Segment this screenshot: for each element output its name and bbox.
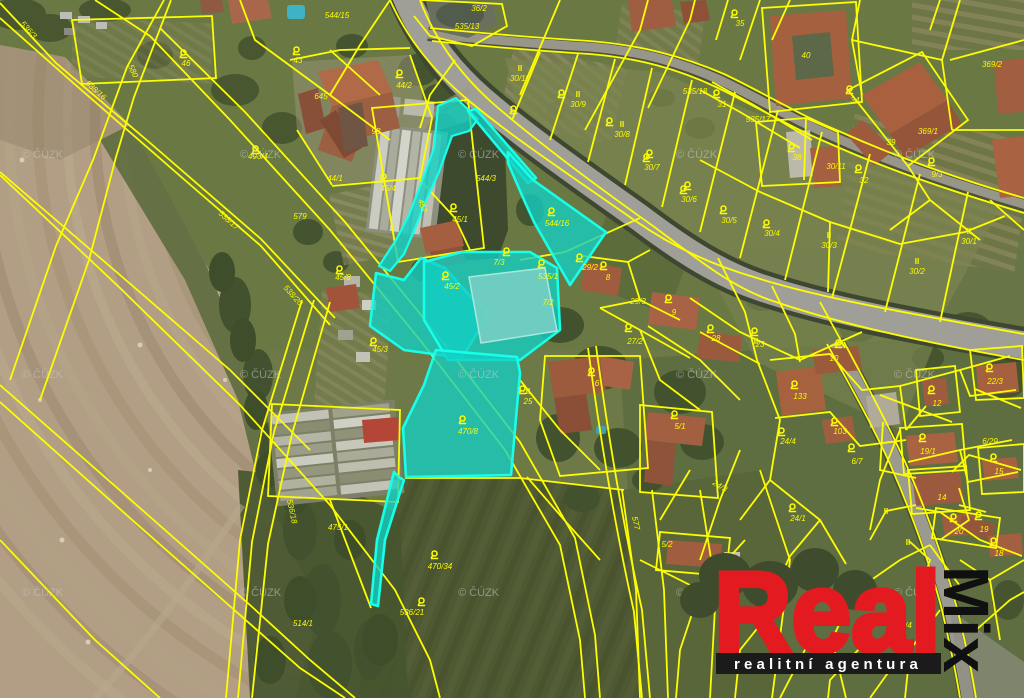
svg-text:© ČÚZK: © ČÚZK <box>240 586 282 599</box>
svg-text:39: 39 <box>887 138 896 147</box>
svg-text:6/7: 6/7 <box>851 457 863 466</box>
svg-text:43: 43 <box>294 56 303 65</box>
svg-text:24/4: 24/4 <box>779 437 796 446</box>
svg-text:369/2: 369/2 <box>982 60 1003 69</box>
svg-text:475/1: 475/1 <box>328 523 348 532</box>
svg-text:30/4: 30/4 <box>764 229 780 238</box>
svg-text:realitní agentura: realitní agentura <box>734 656 922 673</box>
svg-text:© ČÚZK: © ČÚZK <box>676 368 718 381</box>
svg-text:535/17: 535/17 <box>746 115 771 124</box>
svg-text:544/16: 544/16 <box>545 219 570 228</box>
svg-text:24/1: 24/1 <box>789 514 806 523</box>
svg-text:30/11: 30/11 <box>826 162 845 171</box>
svg-text:98: 98 <box>372 127 381 136</box>
svg-text:© ČÚZK: © ČÚZK <box>894 368 936 381</box>
svg-text:© ČÚZK: © ČÚZK <box>458 586 500 599</box>
svg-text:7/3: 7/3 <box>493 258 505 267</box>
svg-text:29/2: 29/2 <box>581 263 598 272</box>
svg-text:44/1: 44/1 <box>327 174 343 183</box>
svg-text:© ČÚZK: © ČÚZK <box>458 148 500 161</box>
svg-text:18: 18 <box>995 549 1004 558</box>
svg-text:© ČÚZK: © ČÚZK <box>240 368 282 381</box>
svg-text:8: 8 <box>606 273 611 282</box>
svg-text:536/21: 536/21 <box>400 608 424 617</box>
svg-text:6/29: 6/29 <box>982 437 998 446</box>
svg-text:535/1: 535/1 <box>538 272 558 281</box>
svg-text:31: 31 <box>718 100 727 109</box>
svg-text:36/2: 36/2 <box>471 4 487 13</box>
svg-text:7/2: 7/2 <box>542 298 554 307</box>
svg-text:535/13: 535/13 <box>455 22 480 31</box>
svg-text:544/15: 544/15 <box>325 11 350 20</box>
svg-text:6: 6 <box>595 379 600 388</box>
svg-text:© ČÚZK: © ČÚZK <box>240 148 282 161</box>
svg-text:II: II <box>915 257 919 266</box>
svg-text:II: II <box>906 538 910 547</box>
svg-text:45/4: 45/4 <box>380 184 396 193</box>
svg-text:© ČÚZK: © ČÚZK <box>22 368 64 381</box>
svg-text:10: 10 <box>830 354 839 363</box>
svg-text:II: II <box>526 387 530 396</box>
svg-text:9: 9 <box>672 308 677 317</box>
svg-text:38: 38 <box>793 153 802 162</box>
svg-text:535/18: 535/18 <box>683 87 708 96</box>
svg-text:30/3: 30/3 <box>821 241 837 250</box>
svg-text:22/3: 22/3 <box>986 377 1003 386</box>
svg-text:45/8: 45/8 <box>335 273 351 282</box>
svg-text:12: 12 <box>933 399 942 408</box>
svg-text:II: II <box>827 231 831 240</box>
svg-text:II: II <box>967 227 971 236</box>
svg-text:30/7: 30/7 <box>644 163 660 172</box>
svg-text:19/1: 19/1 <box>920 447 936 456</box>
svg-text:25: 25 <box>523 397 533 406</box>
svg-text:II: II <box>620 120 624 129</box>
svg-text:30/8: 30/8 <box>614 130 630 139</box>
svg-text:15: 15 <box>995 467 1004 476</box>
svg-text:© ČÚZK: © ČÚZK <box>676 148 718 161</box>
svg-text:5/2: 5/2 <box>661 540 673 549</box>
svg-text:470/8: 470/8 <box>458 427 479 436</box>
svg-text:46: 46 <box>182 59 191 68</box>
svg-text:30/2: 30/2 <box>909 267 925 276</box>
svg-text:19: 19 <box>980 525 989 534</box>
svg-text:II: II <box>518 64 522 73</box>
svg-text:© ČÚZK: © ČÚZK <box>22 148 64 161</box>
svg-text:29/3: 29/3 <box>629 297 646 306</box>
svg-text:579: 579 <box>293 212 307 221</box>
svg-text:30/5: 30/5 <box>721 216 737 225</box>
svg-text:30/6: 30/6 <box>681 195 697 204</box>
svg-text:© ČÚZK: © ČÚZK <box>894 148 936 161</box>
svg-text:Mix: Mix <box>930 566 1002 673</box>
svg-text:35: 35 <box>736 19 745 28</box>
svg-text:34: 34 <box>851 96 860 105</box>
svg-text:II: II <box>576 90 580 99</box>
svg-text:645: 645 <box>314 92 328 101</box>
svg-text:514/1: 514/1 <box>293 619 313 628</box>
svg-text:27/2: 27/2 <box>626 337 643 346</box>
svg-text:5/1: 5/1 <box>674 422 685 431</box>
svg-text:45/2: 45/2 <box>444 282 460 291</box>
svg-text:544/3: 544/3 <box>476 174 497 183</box>
svg-text:32: 32 <box>860 176 869 185</box>
svg-text:103: 103 <box>833 427 847 436</box>
svg-text:45/3: 45/3 <box>372 345 388 354</box>
svg-text:45/1: 45/1 <box>452 215 468 224</box>
svg-text:40: 40 <box>802 51 811 60</box>
svg-text:30/10: 30/10 <box>510 74 531 83</box>
svg-text:9/3: 9/3 <box>931 170 943 179</box>
svg-text:44/2: 44/2 <box>396 81 412 90</box>
svg-text:© ČÚZK: © ČÚZK <box>22 586 64 599</box>
svg-text:14: 14 <box>938 493 947 502</box>
svg-text:II: II <box>754 337 758 346</box>
svg-text:470/34: 470/34 <box>428 562 453 571</box>
svg-text:20: 20 <box>954 527 964 536</box>
svg-text:369/1: 369/1 <box>918 127 938 136</box>
svg-text:28: 28 <box>711 334 721 343</box>
svg-text:© ČÚZK: © ČÚZK <box>458 368 500 381</box>
svg-text:II: II <box>884 507 888 516</box>
svg-text:30/9: 30/9 <box>570 100 586 109</box>
svg-text:133: 133 <box>793 392 807 401</box>
svg-text:30/1: 30/1 <box>961 237 977 246</box>
